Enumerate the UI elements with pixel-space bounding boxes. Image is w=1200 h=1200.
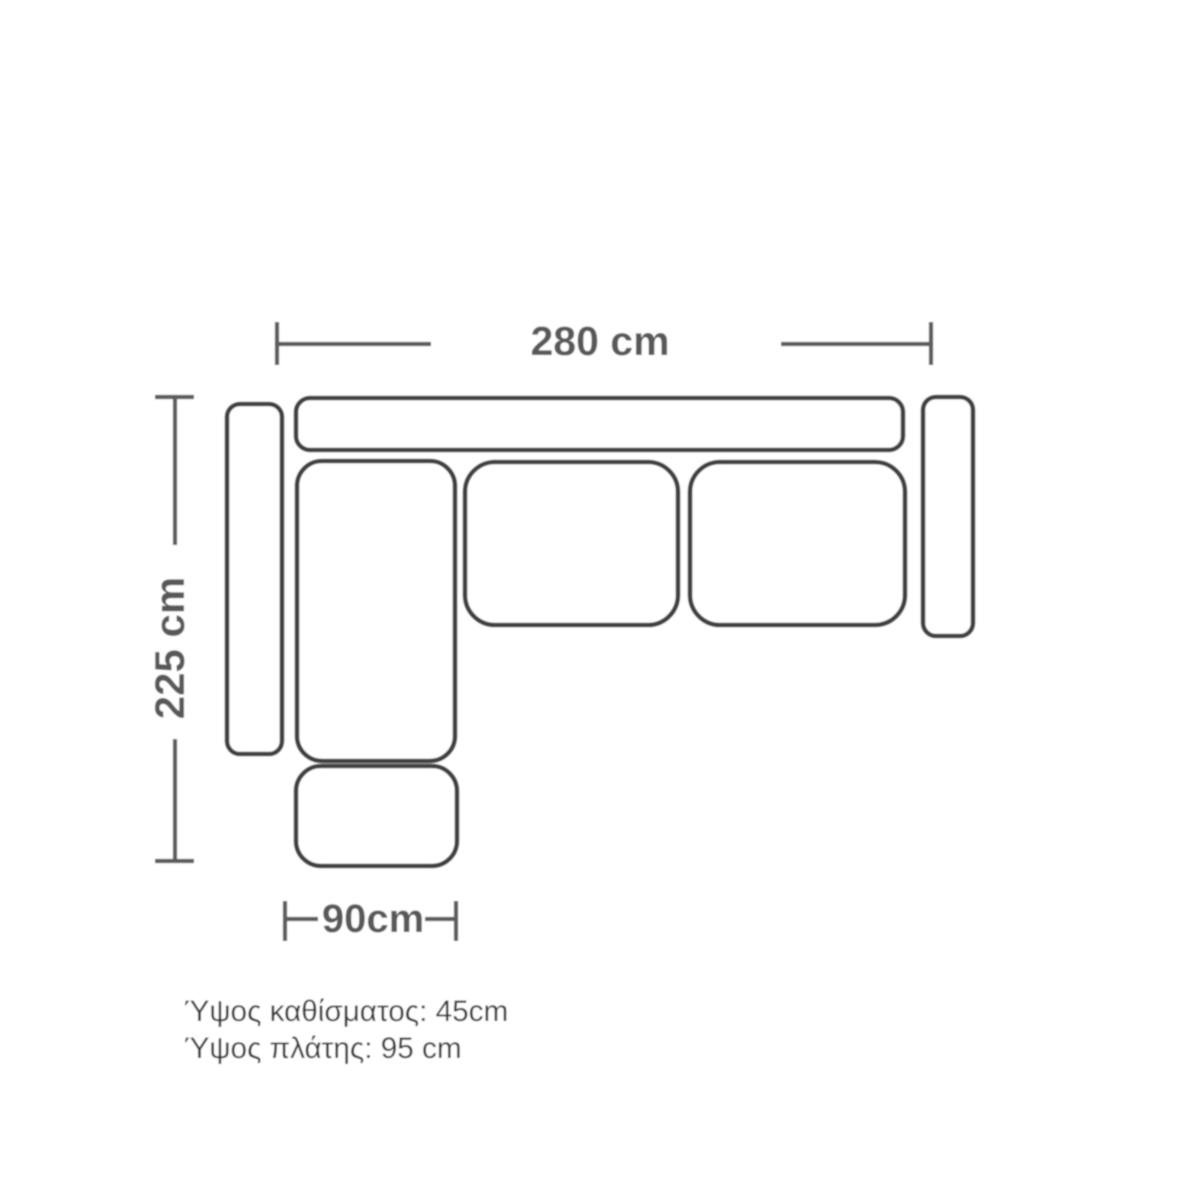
svg-text:90cm: 90cm <box>322 897 424 941</box>
svg-text:Ύψος πλάτης: 95 cm: Ύψος πλάτης: 95 cm <box>184 1032 462 1065</box>
svg-text:225 cm: 225 cm <box>146 577 193 719</box>
svg-text:280 cm: 280 cm <box>530 318 669 364</box>
svg-text:Ύψος καθίσματος: 45cm: Ύψος καθίσματος: 45cm <box>184 995 508 1028</box>
